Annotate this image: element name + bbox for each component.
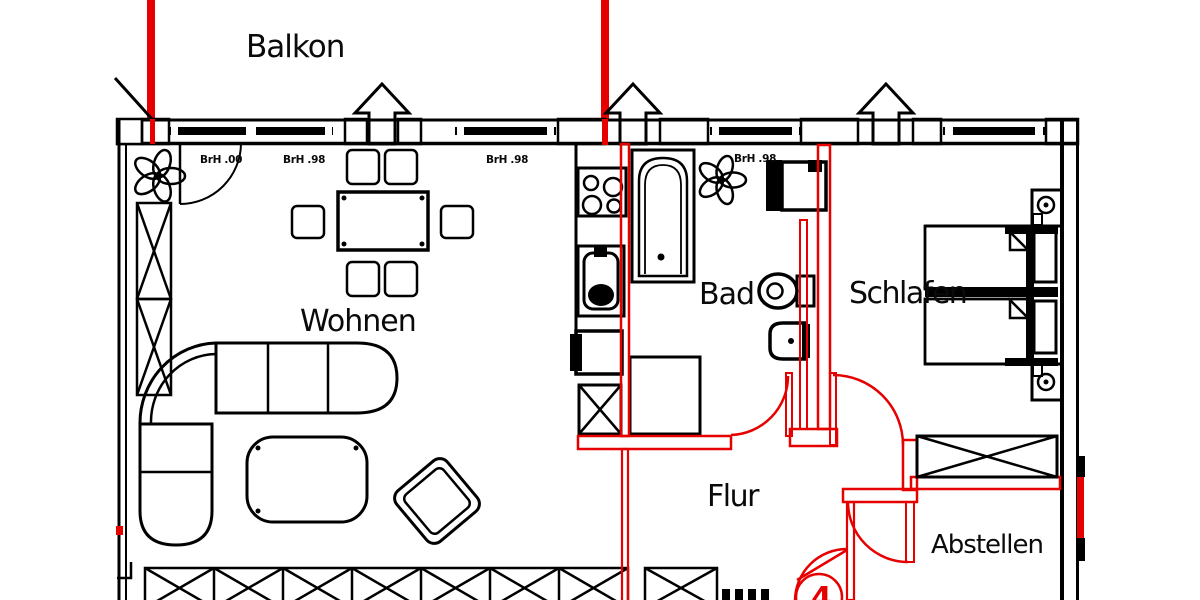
sink-icon <box>578 246 624 316</box>
nightstand-icon <box>1032 190 1062 226</box>
right-wall-new-segment <box>1077 477 1084 538</box>
chair-icon <box>347 262 379 296</box>
cut-off-marks <box>722 589 769 600</box>
floor-plan-svg: Balkon <box>0 0 1200 600</box>
balcony-side-break-line <box>115 78 152 119</box>
hall-bottom <box>645 568 769 600</box>
balcony-divider-line-left <box>147 0 155 120</box>
kitchen-cabinet-icon <box>579 385 621 434</box>
storage-door-arc <box>848 502 908 562</box>
hall-cabinet-icon <box>645 568 717 600</box>
sideboard-icon <box>145 568 628 600</box>
parapet-height-label-2: BrH .98 <box>283 154 325 166</box>
floor-plan-page: Balkon <box>0 0 1200 600</box>
pillow-icon <box>1034 301 1056 353</box>
top-wall-windows <box>116 84 1079 145</box>
armchair-icon <box>391 455 484 548</box>
kitchen <box>570 145 626 434</box>
chair-icon <box>385 262 417 296</box>
apartment-number: 4 <box>811 581 832 600</box>
room-label-wohnen: Wohnen <box>300 304 416 339</box>
bedroom: Schlafen <box>849 190 1062 400</box>
bath-door-arc <box>731 376 788 435</box>
right-wall-attachment <box>1077 538 1085 561</box>
stove-icon <box>578 168 626 216</box>
room-label-schlafen: Schlafen <box>849 276 966 311</box>
blanket-fold <box>1010 300 1028 318</box>
right-wall-attachment <box>1077 456 1085 477</box>
chair-icon <box>347 150 379 184</box>
wall-bath-hall <box>578 436 731 449</box>
wardrobe-icon <box>137 203 171 395</box>
balcony-door-arc <box>180 144 241 204</box>
exterior-walls <box>116 118 1085 600</box>
room-label-abstellen: Abstellen <box>931 530 1043 560</box>
parapet-height-label-4: BrH .98 <box>734 153 776 165</box>
toilet-icon <box>759 274 814 308</box>
blanket-fold <box>1010 232 1028 250</box>
room-label-balkon: Balkon <box>246 29 344 65</box>
wall-hall-left <box>622 449 628 600</box>
bathroom: Bad <box>630 150 826 434</box>
dining-table-icon <box>338 192 428 250</box>
nightstand-icon <box>1032 364 1062 400</box>
basin-icon <box>770 323 810 359</box>
red-line-bridge-right <box>602 119 608 145</box>
storage-door-leaf <box>906 502 914 562</box>
dining-set <box>292 150 473 296</box>
balcony-area: Balkon <box>115 0 609 120</box>
living-room: Wohnen <box>131 144 628 600</box>
entrance-door: 4 <box>795 549 847 600</box>
balcony-divider-line-right <box>601 0 609 119</box>
bedroom-door-arc <box>833 375 903 445</box>
parapet-height-label-1: BrH .00 <box>200 154 242 166</box>
room-label-bad: Bad <box>699 277 754 312</box>
chair-icon <box>385 150 417 184</box>
plant-icon <box>131 148 185 204</box>
parapet-height-label-3: BrH .98 <box>486 154 528 166</box>
fridge-icon <box>570 331 622 374</box>
storage-cabinet-icon <box>917 436 1057 477</box>
room-label-flur: Flur <box>707 479 760 514</box>
bathtub-icon <box>632 150 694 282</box>
chair-icon <box>292 206 324 238</box>
shower-icon <box>630 357 700 434</box>
wall-bedroom-storage <box>911 477 1060 489</box>
bedroom-door-leaf <box>830 373 836 445</box>
left-wall-red-tick <box>116 526 123 535</box>
pillow-icon <box>1034 232 1056 282</box>
coffee-table-icon <box>247 437 367 522</box>
red-line-bridge-left <box>150 119 155 144</box>
wall-bath-bedroom <box>818 145 830 429</box>
chair-icon <box>441 206 473 238</box>
